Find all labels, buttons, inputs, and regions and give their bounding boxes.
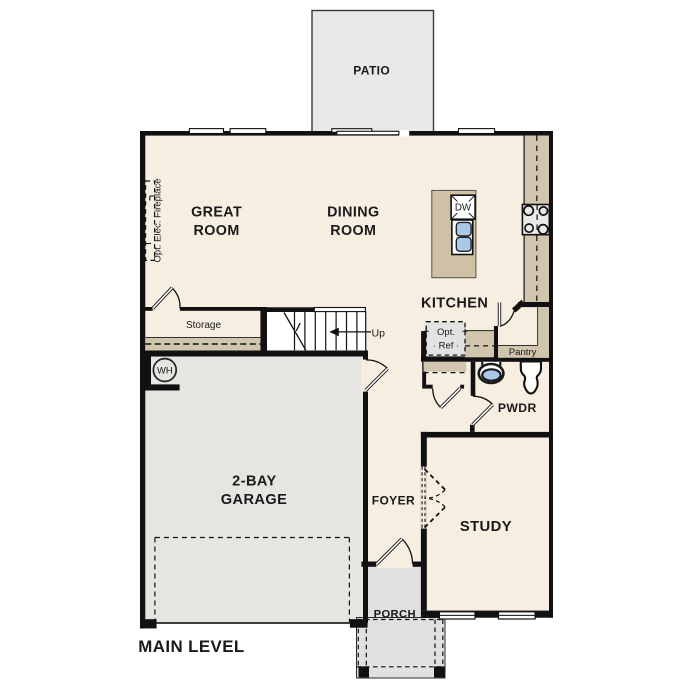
svg-text:DINING: DINING bbox=[327, 205, 379, 221]
svg-text:DW: DW bbox=[455, 202, 472, 213]
svg-text:2-BAY: 2-BAY bbox=[232, 473, 276, 489]
svg-text:GREAT: GREAT bbox=[191, 205, 242, 221]
svg-text:MAIN LEVEL: MAIN LEVEL bbox=[138, 637, 244, 656]
svg-text:STUDY: STUDY bbox=[460, 519, 512, 535]
svg-text:KITCHEN: KITCHEN bbox=[421, 296, 488, 312]
svg-text:GARAGE: GARAGE bbox=[221, 492, 287, 508]
svg-text:Opt.: Opt. bbox=[437, 327, 455, 338]
svg-text:ROOM: ROOM bbox=[194, 223, 240, 239]
svg-text:PWDR: PWDR bbox=[498, 401, 537, 415]
svg-text:Pantry: Pantry bbox=[509, 347, 537, 358]
svg-text:Storage: Storage bbox=[186, 320, 221, 331]
svg-text:FOYER: FOYER bbox=[372, 494, 415, 508]
svg-text:Opt. Elec. Fireplace: Opt. Elec. Fireplace bbox=[153, 178, 164, 262]
svg-text:PATIO: PATIO bbox=[353, 64, 390, 78]
svg-text:ROOM: ROOM bbox=[330, 223, 376, 239]
svg-text:Up: Up bbox=[372, 328, 386, 340]
svg-text:PORCH: PORCH bbox=[374, 609, 416, 621]
svg-text:WH: WH bbox=[157, 364, 173, 375]
svg-text:· Ref ·: · Ref · bbox=[433, 341, 459, 352]
